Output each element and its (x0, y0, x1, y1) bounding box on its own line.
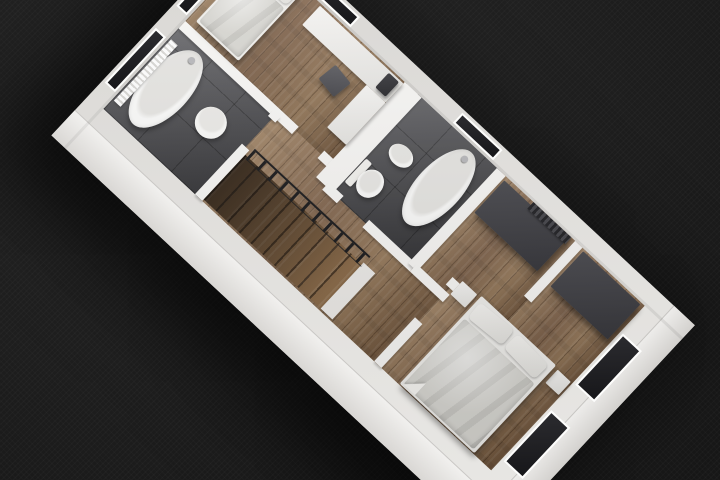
floor-plan-render (0, 0, 720, 480)
apartment-floor-plan (51, 0, 694, 480)
